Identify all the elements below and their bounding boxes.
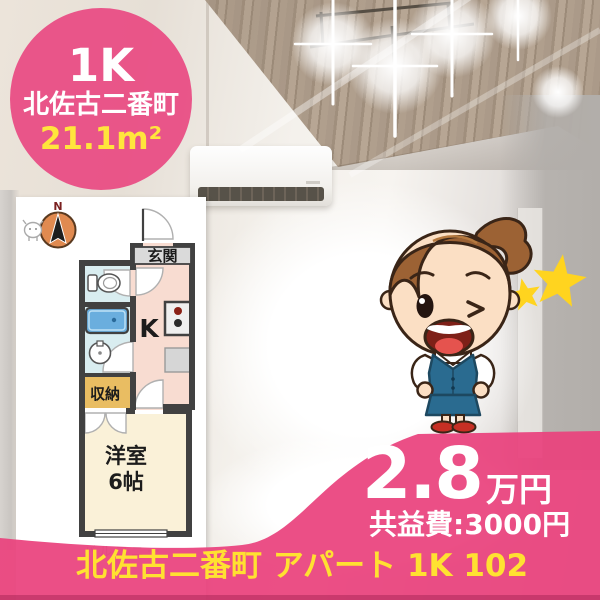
room-label-2: 6帖 bbox=[108, 470, 144, 494]
rent-amount: 2.8 bbox=[362, 438, 482, 509]
doodle-sketch bbox=[23, 220, 43, 241]
banner-edge bbox=[0, 595, 600, 600]
mascot-mouth bbox=[425, 320, 473, 354]
mascot-shoe bbox=[432, 422, 455, 433]
mascot-body bbox=[412, 351, 494, 433]
badge-area: 21.1m² bbox=[40, 121, 162, 158]
mascot-shoe bbox=[453, 422, 476, 433]
lens-flares bbox=[240, 0, 600, 175]
ceiling-light bbox=[220, 0, 600, 190]
kitchen-counter bbox=[165, 348, 190, 372]
toilet-icon bbox=[88, 274, 120, 292]
storage-label: 収納 bbox=[90, 385, 120, 403]
mascot-eye-open bbox=[417, 294, 434, 318]
floor-plan: N bbox=[16, 197, 206, 600]
north-compass-icon: N bbox=[41, 200, 76, 248]
listing-title: 北佐古二番町 アパート 1K 102 bbox=[76, 551, 528, 582]
svg-text:N: N bbox=[53, 200, 62, 213]
area-badge: 1K 北佐古二番町 21.1m² bbox=[10, 8, 192, 190]
entrance-label: 玄関 bbox=[147, 247, 177, 265]
common-fee: 共益費:3000円 bbox=[369, 511, 570, 539]
plan-type: 1K bbox=[68, 42, 134, 89]
star-icon-large bbox=[534, 254, 587, 306]
kitchen-label: K bbox=[139, 314, 160, 343]
stove-icon bbox=[165, 302, 192, 335]
rent-unit: 万円 bbox=[486, 473, 552, 506]
eye-highlight bbox=[419, 298, 425, 304]
listing-image: N bbox=[0, 0, 600, 600]
badge-location: 北佐古二番町 bbox=[23, 89, 179, 122]
window-symbol bbox=[95, 530, 167, 537]
room-label-1: 洋室 bbox=[105, 444, 147, 468]
agent-mascot bbox=[373, 203, 588, 438]
bathtub-icon bbox=[86, 308, 128, 333]
